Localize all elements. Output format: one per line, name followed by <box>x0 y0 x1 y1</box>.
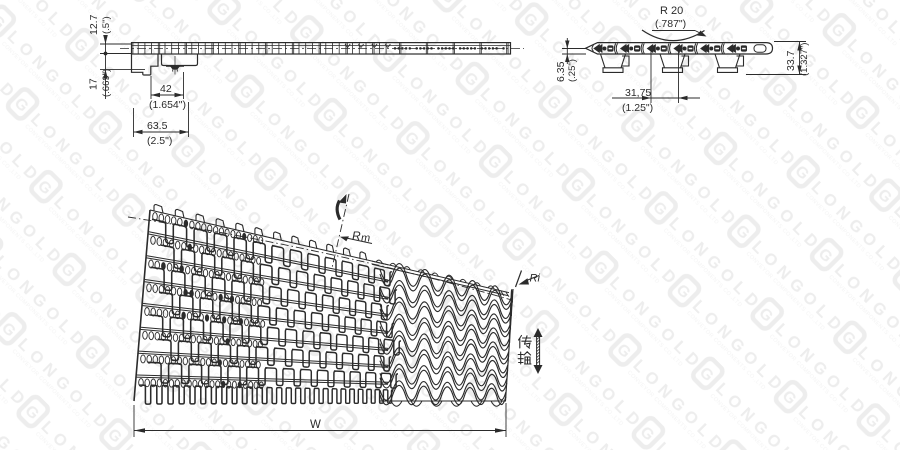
svg-text:63.5: 63.5 <box>147 120 168 132</box>
svg-text:6.35: 6.35 <box>555 61 567 82</box>
svg-text:R: R <box>352 229 361 243</box>
svg-text:(1.25"): (1.25") <box>622 102 653 114</box>
svg-text:(.25"): (.25") <box>567 59 578 82</box>
svg-text:(.5"): (.5") <box>101 16 112 34</box>
svg-text:R 20: R 20 <box>660 5 683 17</box>
svg-text:(1.654"): (1.654") <box>149 99 186 111</box>
svg-text:m: m <box>361 233 370 245</box>
svg-text:(1.327"): (1.327") <box>799 43 810 76</box>
svg-text:33.7: 33.7 <box>785 50 797 71</box>
svg-text:17: 17 <box>88 78 100 90</box>
svg-text:W: W <box>310 419 321 431</box>
svg-text:42: 42 <box>160 83 172 95</box>
svg-text:12.7: 12.7 <box>88 14 100 35</box>
svg-text:(2.5"): (2.5") <box>147 135 172 147</box>
svg-text:Ri: Ri <box>530 273 541 285</box>
svg-text:31,75: 31,75 <box>625 87 651 99</box>
svg-text:(.787"): (.787") <box>655 18 686 30</box>
svg-text:(.669"): (.669") <box>101 69 112 97</box>
